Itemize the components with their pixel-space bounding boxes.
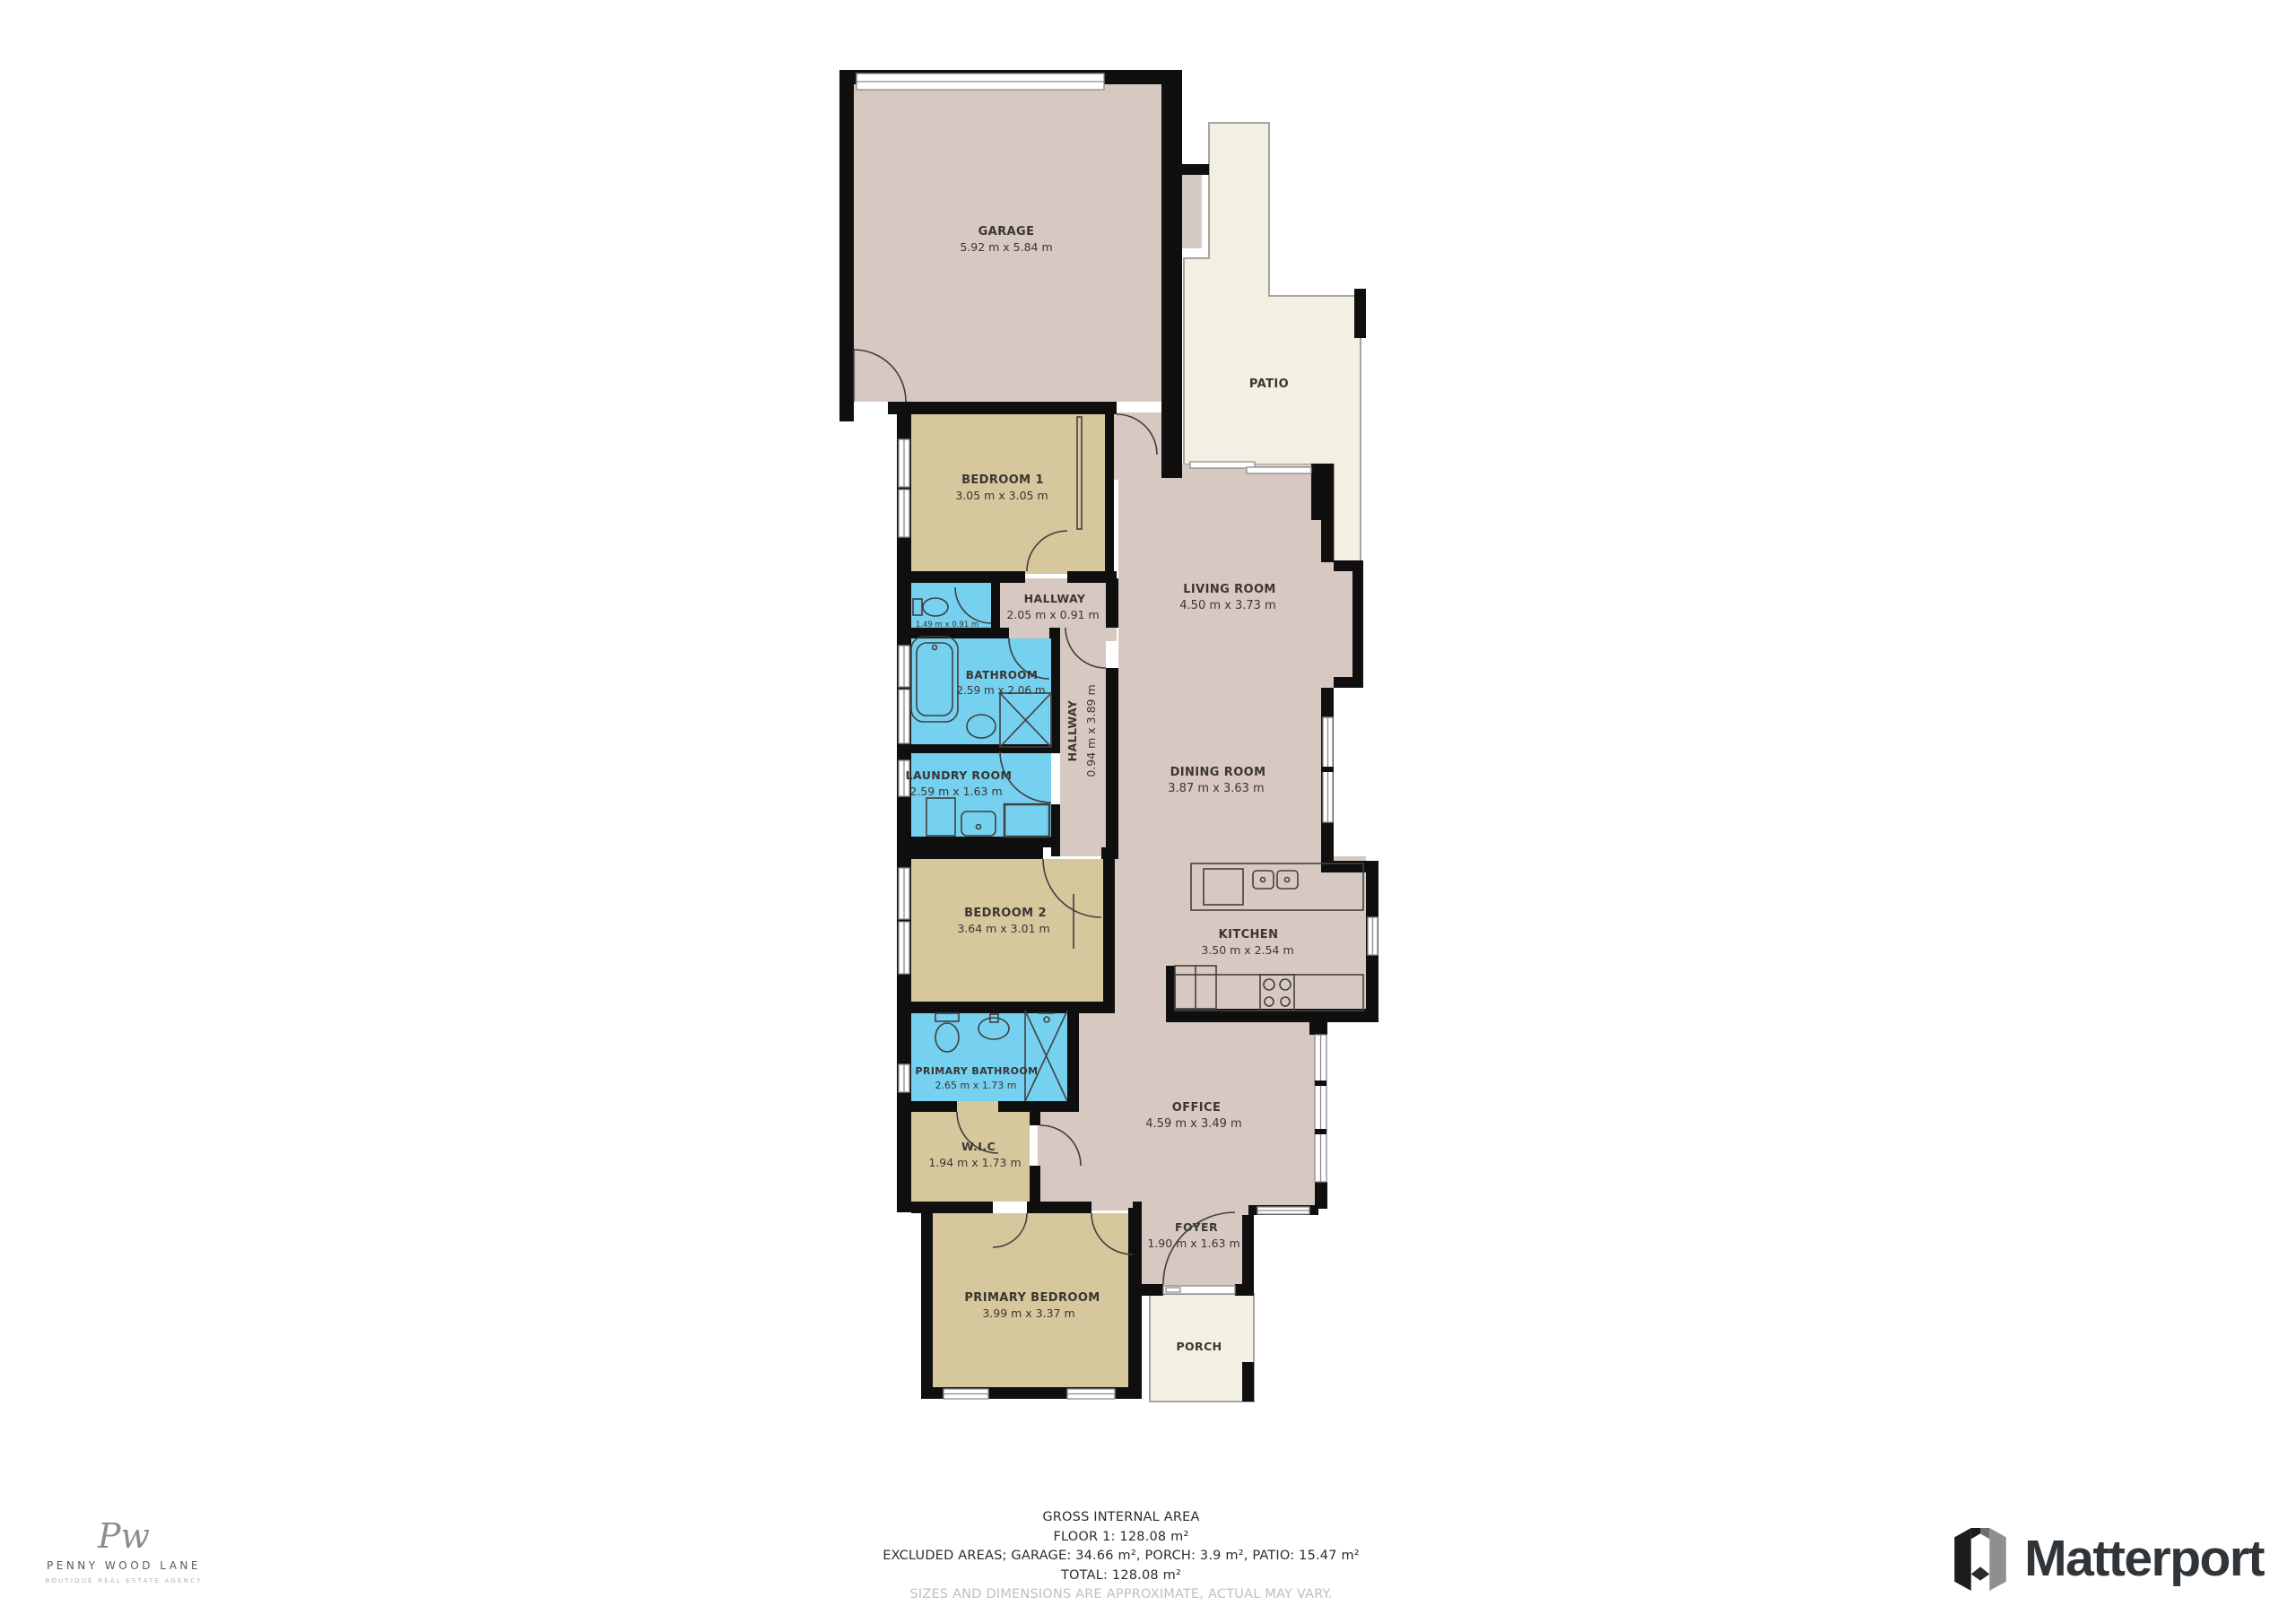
label-hallway-h-dims: 2.05 m x 0.91 m (1006, 608, 1099, 621)
label-primary-bath: PRIMARY BATHROOM (915, 1065, 1038, 1077)
label-wic: W.I.C (961, 1140, 996, 1153)
label-patio: PATIO (1249, 378, 1289, 391)
label-garage-dims: 5.92 m x 5.84 m (960, 240, 1052, 254)
label-dining: DINING ROOM (1170, 766, 1266, 779)
excluded-areas: EXCLUDED AREAS; GARAGE: 34.66 m², PORCH:… (762, 1547, 1480, 1567)
label-bathroom: BATHROOM (966, 669, 1039, 681)
label-living-dims: 4.50 m x 3.73 m (1179, 599, 1275, 612)
agency-logo: Pw PENNY WOOD LANE BOUTIQUE REAL ESTATE … (34, 1518, 213, 1584)
label-office-dims: 4.59 m x 3.49 m (1145, 1117, 1241, 1131)
label-kitchen: KITCHEN (1219, 928, 1279, 942)
label-primary-bath-dims: 2.65 m x 1.73 m (935, 1080, 1017, 1091)
label-bedroom1-dims: 3.05 m x 3.05 m (955, 489, 1048, 502)
area-summary: GROSS INTERNAL AREA FLOOR 1: 128.08 m² E… (762, 1508, 1480, 1605)
label-garage: GARAGE (978, 225, 1035, 239)
living-sliding-door (1190, 462, 1255, 468)
floor-plan-canvas: GARAGE 5.92 m x 5.84 m PATIO BEDROOM 1 3… (0, 0, 2296, 1623)
label-bathroom-dims: 2.59 m x 2.06 m (956, 684, 1045, 697)
label-living: LIVING ROOM (1183, 583, 1276, 596)
label-kitchen-dims: 3.50 m x 2.54 m (1201, 943, 1293, 957)
label-dining-dims: 3.87 m x 3.63 m (1168, 782, 1264, 795)
label-wc-dims: 1.49 m x 0.91 m (916, 621, 978, 629)
label-foyer-dims: 1.90 m x 1.63 m (1147, 1237, 1239, 1250)
floorplan-page: GARAGE 5.92 m x 5.84 m PATIO BEDROOM 1 3… (0, 0, 2296, 1623)
label-bedroom1: BEDROOM 1 (961, 473, 1044, 487)
label-hallway-v-dims: 0.94 m x 3.89 m (1084, 684, 1098, 777)
label-hallway-v: HALLWAY (1065, 699, 1079, 761)
label-bedroom2: BEDROOM 2 (964, 907, 1047, 920)
matterport-wordmark: Matterport (2024, 1529, 2264, 1588)
label-laundry-dims: 2.59 m x 1.63 m (909, 785, 1002, 798)
agency-monogram: Pw (34, 1518, 213, 1554)
label-wic-dims: 1.94 m x 1.73 m (928, 1156, 1021, 1169)
label-hallway-h: HALLWAY (1024, 592, 1086, 605)
label-foyer: FOYER (1175, 1220, 1218, 1234)
agency-name: PENNY WOOD LANE (34, 1559, 213, 1572)
label-primary-bedroom-dims: 3.99 m x 3.37 m (982, 1306, 1074, 1320)
matterport-logo: Matterport (1952, 1526, 2264, 1591)
room-living-dining-floor (1118, 464, 1334, 865)
label-office: OFFICE (1172, 1101, 1221, 1115)
bedroom1-closet-door (1077, 417, 1082, 529)
total-area: TOTAL: 128.08 m² (762, 1567, 1480, 1586)
label-laundry: LAUNDRY ROOM (906, 768, 1013, 782)
label-primary-bedroom: PRIMARY BEDROOM (964, 1291, 1100, 1305)
matterport-icon (1952, 1526, 2008, 1591)
agency-tagline: BOUTIQUE REAL ESTATE AGENCY (34, 1577, 213, 1584)
dimensions-disclaimer: SIZES AND DIMENSIONS ARE APPROXIMATE, AC… (762, 1585, 1480, 1605)
gross-internal-area-label: GROSS INTERNAL AREA (762, 1508, 1480, 1528)
floor1-area: FLOOR 1: 128.08 m² (762, 1528, 1480, 1548)
label-bedroom2-dims: 3.64 m x 3.01 m (957, 922, 1049, 935)
label-porch: PORCH (1176, 1340, 1222, 1353)
